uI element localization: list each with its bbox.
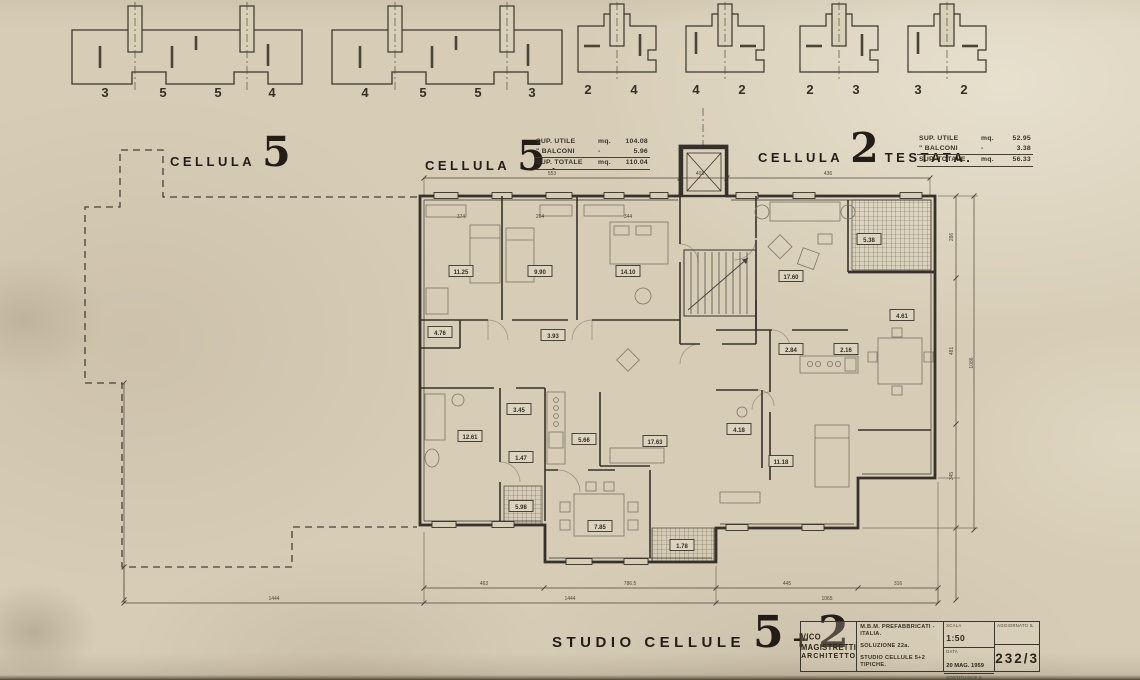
dimension-value: 463: [480, 581, 489, 587]
diagram-unit-number: 3: [914, 82, 921, 97]
area-row: " BALCONI - 3.38: [917, 144, 1033, 155]
room-area-labels: 11.259.9014.104.763.9312.613.451.475.661…: [428, 234, 914, 551]
unit-diagram: 42: [686, 2, 764, 97]
room-area-value: 12.61: [462, 435, 478, 441]
dimension-value: 481: [949, 347, 955, 356]
updated-cell: AGGIORNATO IL: [995, 622, 1039, 645]
title-block-project: M.B.M. PREFABBRICATI - ITALIA. SOLUZIONE…: [857, 622, 944, 671]
area-row: SUP. UTILE mq. 104.08: [534, 137, 650, 147]
diagram-unit-number: 5: [159, 85, 166, 100]
area-row: SUP. TOTALE mq. 110.04: [534, 158, 650, 169]
area-row-label: SUP. UTILE: [919, 134, 981, 144]
diagram-unit-number: 2: [960, 82, 967, 97]
room-area-value: 3.45: [513, 408, 525, 414]
dimension-value: 445: [783, 581, 792, 587]
area-row: SUP. TOTALE mq. 56.33: [917, 155, 1033, 166]
header-word: CELLULA: [758, 150, 843, 165]
solution-label: SOLUZIONE 22a.: [860, 643, 940, 650]
room-area-value: 4.18: [733, 428, 745, 434]
diagram-unit-number: 3: [852, 82, 859, 97]
staircase: [684, 250, 756, 316]
sheet-title-text: STUDIO CELLULE: [552, 634, 745, 651]
sheet-title-number: 5: [753, 618, 784, 649]
dimension-value: 286: [949, 233, 955, 242]
area-row-label: SUP. TOTALE: [536, 158, 598, 168]
drawing-number-cell: 232/3: [995, 645, 1039, 671]
unit-diagram: 3554: [72, 2, 302, 100]
room-area-value: 1.47: [515, 456, 527, 462]
balcony-hatch: [504, 200, 931, 561]
room-area-value: 9.90: [534, 270, 546, 276]
area-row-unit: mq.: [981, 155, 1001, 165]
room-area-value: 4.76: [434, 331, 446, 337]
paper-bottom-edge: [0, 675, 1140, 680]
diagram-unit-number: 2: [738, 82, 745, 97]
dimension-value: 264: [536, 214, 545, 220]
architect-title: ARCHITETTO: [801, 653, 856, 660]
header-number: 5: [262, 138, 290, 168]
title-block-scale-date: SCALA 1:50 DATA 20 MAG. 1959 SOSTITUISCE…: [944, 622, 995, 671]
dimension-value: 316: [894, 581, 903, 587]
title-block-number: AGGIORNATO IL 232/3: [995, 622, 1039, 671]
drawing-number: 232/3: [995, 651, 1039, 666]
diagram-unit-number: 3: [101, 85, 108, 100]
unit-diagram: 23: [800, 2, 878, 97]
area-table-cellula2: SUP. UTILE mq. 52.95 " BALCONI - 3.38 SU…: [917, 134, 1033, 167]
area-row-value: 110.04: [618, 158, 648, 168]
dimension-value: 786.5: [624, 581, 637, 587]
dimension-value: 1444: [564, 596, 575, 602]
date-cell: DATA 20 MAG. 1959: [944, 648, 994, 674]
dimension-value: 1086: [969, 357, 975, 368]
title-block: VICO MAGISTRETTI ARCHITETTO M.B.M. PREFA…: [800, 621, 1040, 672]
area-row-unit: mq.: [981, 134, 1001, 144]
room-area-value: 5.98: [515, 505, 527, 511]
area-row-label: " BALCONI: [536, 147, 598, 157]
area-row-unit: -: [981, 144, 1001, 154]
floor-plan-drawing: 3554455324422332: [0, 0, 1140, 680]
area-row-unit: mq.: [598, 158, 618, 168]
diagram-unit-number: 4: [361, 85, 369, 100]
diagram-unit-number: 5: [214, 85, 221, 100]
drawing-subject: STUDIO CELLULE 5+2 TIPICHE.: [860, 655, 940, 669]
room-area-value: 5.66: [578, 438, 590, 444]
unit-diagram: 32: [908, 2, 986, 97]
diagram-unit-number: 2: [584, 82, 591, 97]
header-word: CELLULA: [170, 154, 255, 169]
diagram-unit-number: 4: [692, 82, 700, 97]
dimension-value: 1065: [821, 596, 832, 602]
room-area-value: 2.16: [840, 348, 852, 354]
room-area-value: 5.38: [863, 238, 875, 244]
unit-diagram: 4553: [332, 2, 562, 100]
scale-value: 1:50: [946, 633, 965, 643]
dimension-value: 436: [824, 171, 833, 177]
dimension-value: 344: [624, 214, 633, 220]
dimension-value: 1444: [268, 596, 279, 602]
date-label: DATA: [946, 649, 992, 654]
unit-combination-diagrams: 3554455324422332: [72, 2, 986, 100]
area-row-unit: mq.: [598, 137, 618, 147]
diagram-unit-number: 4: [268, 85, 276, 100]
area-row-label: SUP. UTILE: [536, 137, 598, 147]
area-row-value: 56.33: [1001, 155, 1031, 165]
area-row-value: 5.96: [618, 147, 648, 157]
room-area-value: 2.84: [785, 348, 797, 354]
room-area-value: 4.61: [896, 314, 908, 320]
header-word: CELLULA: [425, 158, 510, 173]
diagram-unit-number: 3: [528, 85, 535, 100]
room-area-value: 17.60: [783, 275, 799, 281]
diagram-unit-number: 4: [630, 82, 638, 97]
updated-label: AGGIORNATO IL: [997, 623, 1037, 628]
architect-name: VICO MAGISTRETTI: [801, 632, 856, 653]
scale-label: SCALA: [946, 623, 992, 628]
area-row-unit: -: [598, 147, 618, 157]
client-name: M.B.M. PREFABBRICATI - ITALIA.: [860, 624, 940, 638]
header-number: 2: [850, 134, 878, 164]
date-value: 20 MAG. 1959: [946, 663, 984, 669]
room-area-value: 11.25: [454, 270, 469, 276]
dashed-cell-outline: [85, 150, 417, 567]
scale-cell: SCALA 1:50: [944, 622, 994, 648]
unit-diagram: 24: [578, 2, 656, 97]
room-area-value: 14.10: [620, 270, 636, 276]
title-block-architect-stamp: VICO MAGISTRETTI ARCHITETTO: [801, 622, 857, 671]
dimension-value: 345: [949, 472, 955, 481]
blueprint-sheet: { "drawing": { "headers": { "left": {"wo…: [0, 0, 1140, 680]
room-area-value: 17.63: [647, 440, 663, 446]
diagram-unit-number: 5: [474, 85, 481, 100]
room-area-value: 1.78: [676, 544, 688, 550]
area-row-value: 52.95: [1001, 134, 1031, 144]
area-row-value: 104.08: [618, 137, 648, 147]
header-cellula-left: CELLULA 5: [170, 138, 290, 169]
room-area-value: 11.18: [774, 460, 789, 466]
diagram-unit-number: 5: [419, 85, 426, 100]
room-area-value: 3.93: [547, 334, 559, 340]
area-row: " BALCONI - 5.96: [534, 147, 650, 158]
area-row: SUP. UTILE mq. 52.95: [917, 134, 1033, 144]
room-area-value: 7.85: [594, 525, 606, 531]
dimension-value: 403: [696, 171, 705, 177]
diagram-unit-number: 2: [806, 82, 813, 97]
area-row-label: SUP. TOTALE: [919, 155, 981, 165]
area-row-label: " BALCONI: [919, 144, 981, 154]
dimension-value: 374: [457, 214, 466, 220]
area-row-value: 3.38: [1001, 144, 1031, 154]
area-table-cellula5: SUP. UTILE mq. 104.08 " BALCONI - 5.96 S…: [534, 137, 650, 170]
